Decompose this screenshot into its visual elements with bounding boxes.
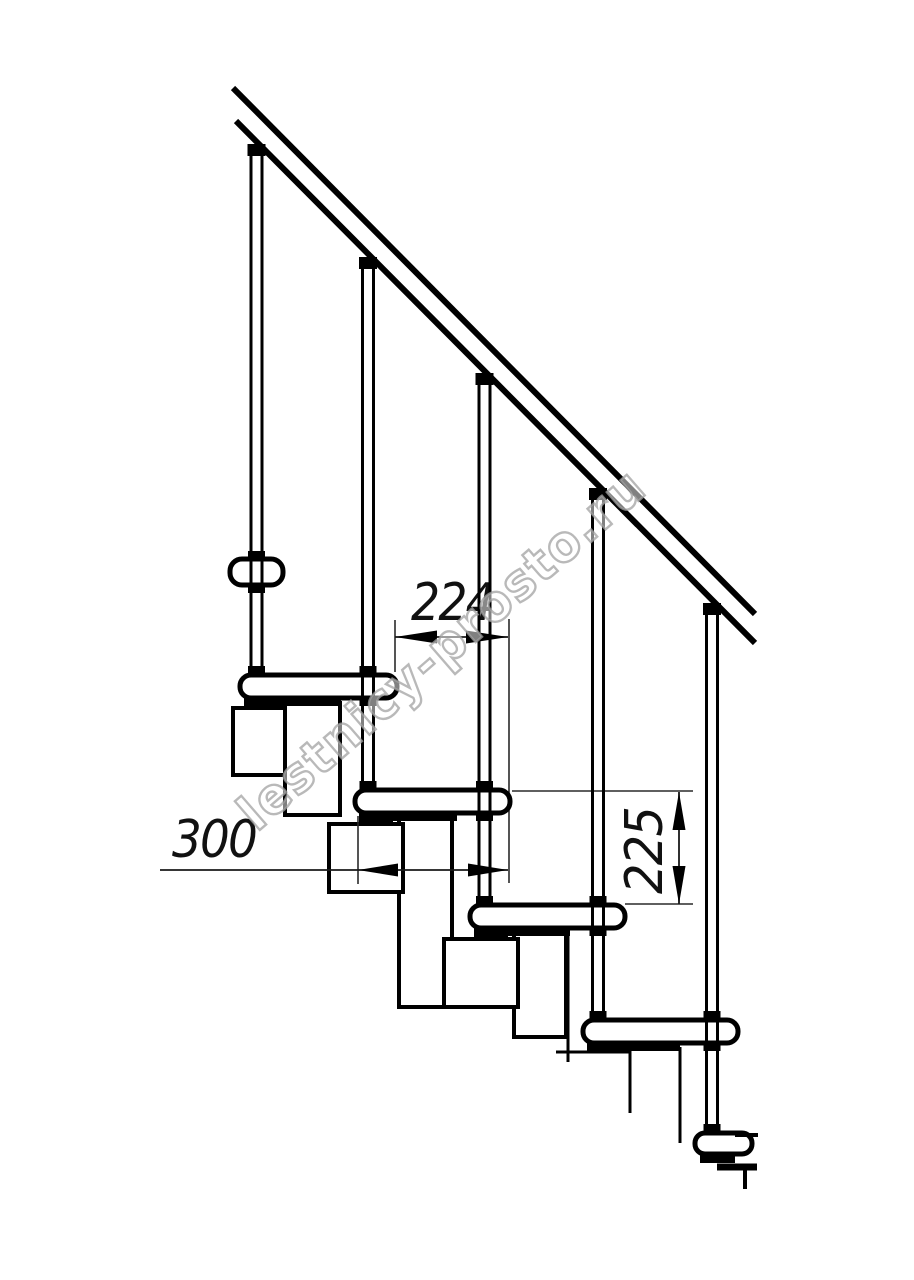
mount-strip-5 [700,1154,735,1163]
upper-bracket-tread [230,559,283,585]
dimension-label-225: 225 [615,808,675,894]
tread-3 [470,905,625,928]
baluster-1 [248,144,266,675]
mount-strip-1 [248,699,341,706]
tread-2 [355,790,510,813]
baluster-5-mid-collar-top [704,1011,721,1020]
baluster-4-mid-collar-top [590,896,607,905]
support-module-under-tread3-tall [514,929,566,1037]
baluster-3-mid-collar-bottom [476,813,493,821]
mount-strip-3 [478,929,570,936]
dimension-label-300: 300 [172,810,256,870]
tread-4 [583,1020,738,1043]
handrail [233,88,755,643]
baluster-1-foot-collar [248,666,265,675]
support-module-under-tread2-box [329,824,403,892]
baluster-4-foot-collar [590,1011,607,1020]
arrow-300-right [468,864,508,877]
baluster-5-foot-collar [704,1124,721,1133]
baluster-2-foot-collar [360,781,377,790]
baluster-4-mid-collar-bottom [590,928,607,936]
mount-strip-4 [591,1044,680,1051]
drawing-svg: 224 300 225 [0,0,914,1280]
baluster-5 [703,603,721,1133]
baluster-4 [589,488,607,1020]
baluster-1-bracket-lower-collar [248,585,265,593]
handrail-top-line [233,88,755,614]
baluster-3-foot-collar [476,896,493,905]
baluster-5-mid-collar-bottom [704,1043,721,1051]
baluster-1-bracket-collar [248,551,265,560]
baluster-3-mid-collar-top [476,781,493,790]
staircase-technical-drawing: 224 300 225 [0,0,914,1280]
mount-strip-2 [363,814,457,821]
support-module-under-tread3-box [444,939,518,1007]
